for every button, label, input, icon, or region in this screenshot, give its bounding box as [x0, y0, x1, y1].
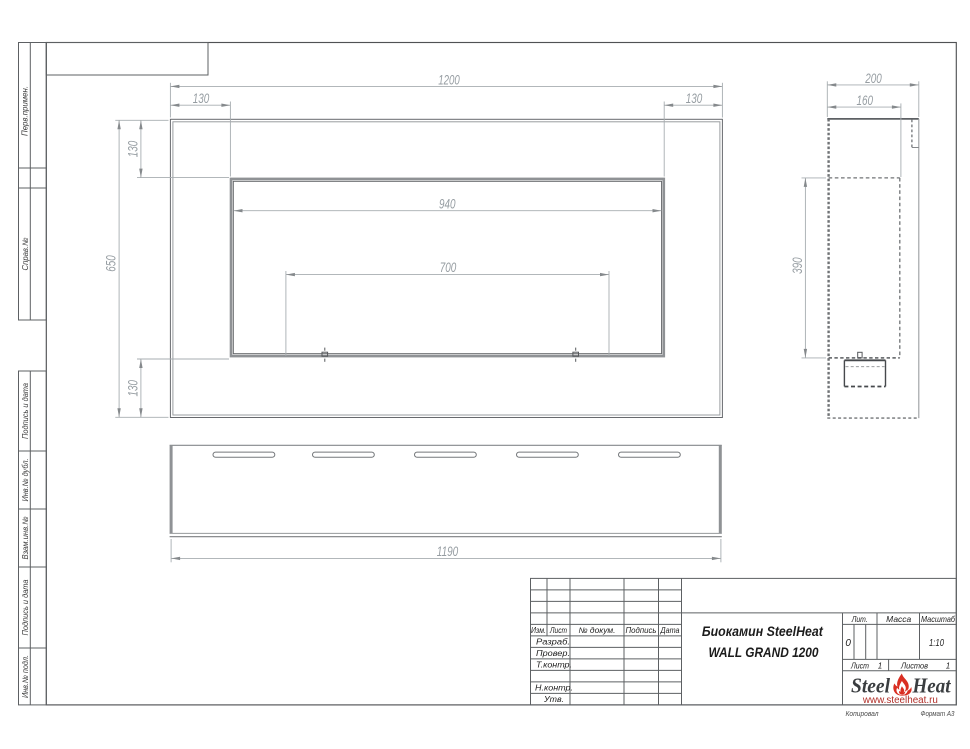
svg-text:Лит.: Лит. — [851, 615, 868, 624]
svg-text:Подпись и дата: Подпись и дата — [21, 579, 30, 636]
svg-text:1200: 1200 — [438, 72, 460, 88]
svg-text:1190: 1190 — [437, 544, 459, 560]
svg-text:Листов: Листов — [900, 661, 928, 670]
svg-text:0: 0 — [845, 638, 851, 649]
svg-text:Подпись: Подпись — [626, 626, 657, 635]
svg-text:Взам.инв.№: Взам.инв.№ — [21, 516, 30, 559]
svg-text:Биокамин SteelHeat: Биокамин SteelHeat — [702, 623, 824, 639]
svg-text:Н.контр.: Н.контр. — [535, 684, 573, 693]
svg-text:Масштаб: Масштаб — [921, 615, 955, 624]
svg-text:www.steelheat.ru: www.steelheat.ru — [862, 695, 938, 706]
svg-text:Утв.: Утв. — [543, 695, 564, 704]
svg-text:1: 1 — [878, 661, 882, 670]
svg-text:390: 390 — [790, 257, 806, 274]
svg-text:130: 130 — [125, 141, 141, 158]
svg-text:1:10: 1:10 — [929, 637, 944, 649]
svg-text:130: 130 — [125, 380, 141, 397]
svg-text:940: 940 — [439, 196, 456, 212]
svg-text:160: 160 — [857, 93, 874, 109]
svg-text:700: 700 — [440, 260, 457, 276]
svg-text:Лист: Лист — [549, 626, 567, 635]
svg-text:650: 650 — [104, 255, 120, 272]
svg-text:Инв.№ подл.: Инв.№ подл. — [21, 655, 30, 698]
svg-text:Лист: Лист — [850, 661, 869, 670]
svg-text:Перв.примен.: Перв.примен. — [21, 86, 30, 136]
svg-text:Провер.: Провер. — [536, 649, 570, 658]
svg-text:Т.контр.: Т.контр. — [536, 661, 572, 670]
svg-text:Подпись и дата: Подпись и дата — [21, 382, 30, 439]
svg-text:Инв.№ дубл.: Инв.№ дубл. — [21, 459, 30, 502]
svg-text:Копировал: Копировал — [846, 709, 880, 718]
svg-text:Изм.: Изм. — [531, 626, 546, 635]
svg-text:WALL GRAND 1200: WALL GRAND 1200 — [709, 644, 819, 660]
svg-text:130: 130 — [686, 91, 703, 107]
svg-text:1: 1 — [946, 661, 950, 670]
svg-text:130: 130 — [193, 91, 210, 107]
svg-text:Справ.№: Справ.№ — [21, 237, 30, 270]
svg-text:Формат А3: Формат А3 — [921, 709, 956, 718]
svg-text:Масса: Масса — [886, 615, 912, 624]
svg-text:№ докум.: № докум. — [579, 626, 616, 635]
svg-text:Разраб.: Разраб. — [536, 638, 570, 647]
svg-text:200: 200 — [865, 71, 882, 87]
svg-text:Дата: Дата — [660, 626, 680, 635]
